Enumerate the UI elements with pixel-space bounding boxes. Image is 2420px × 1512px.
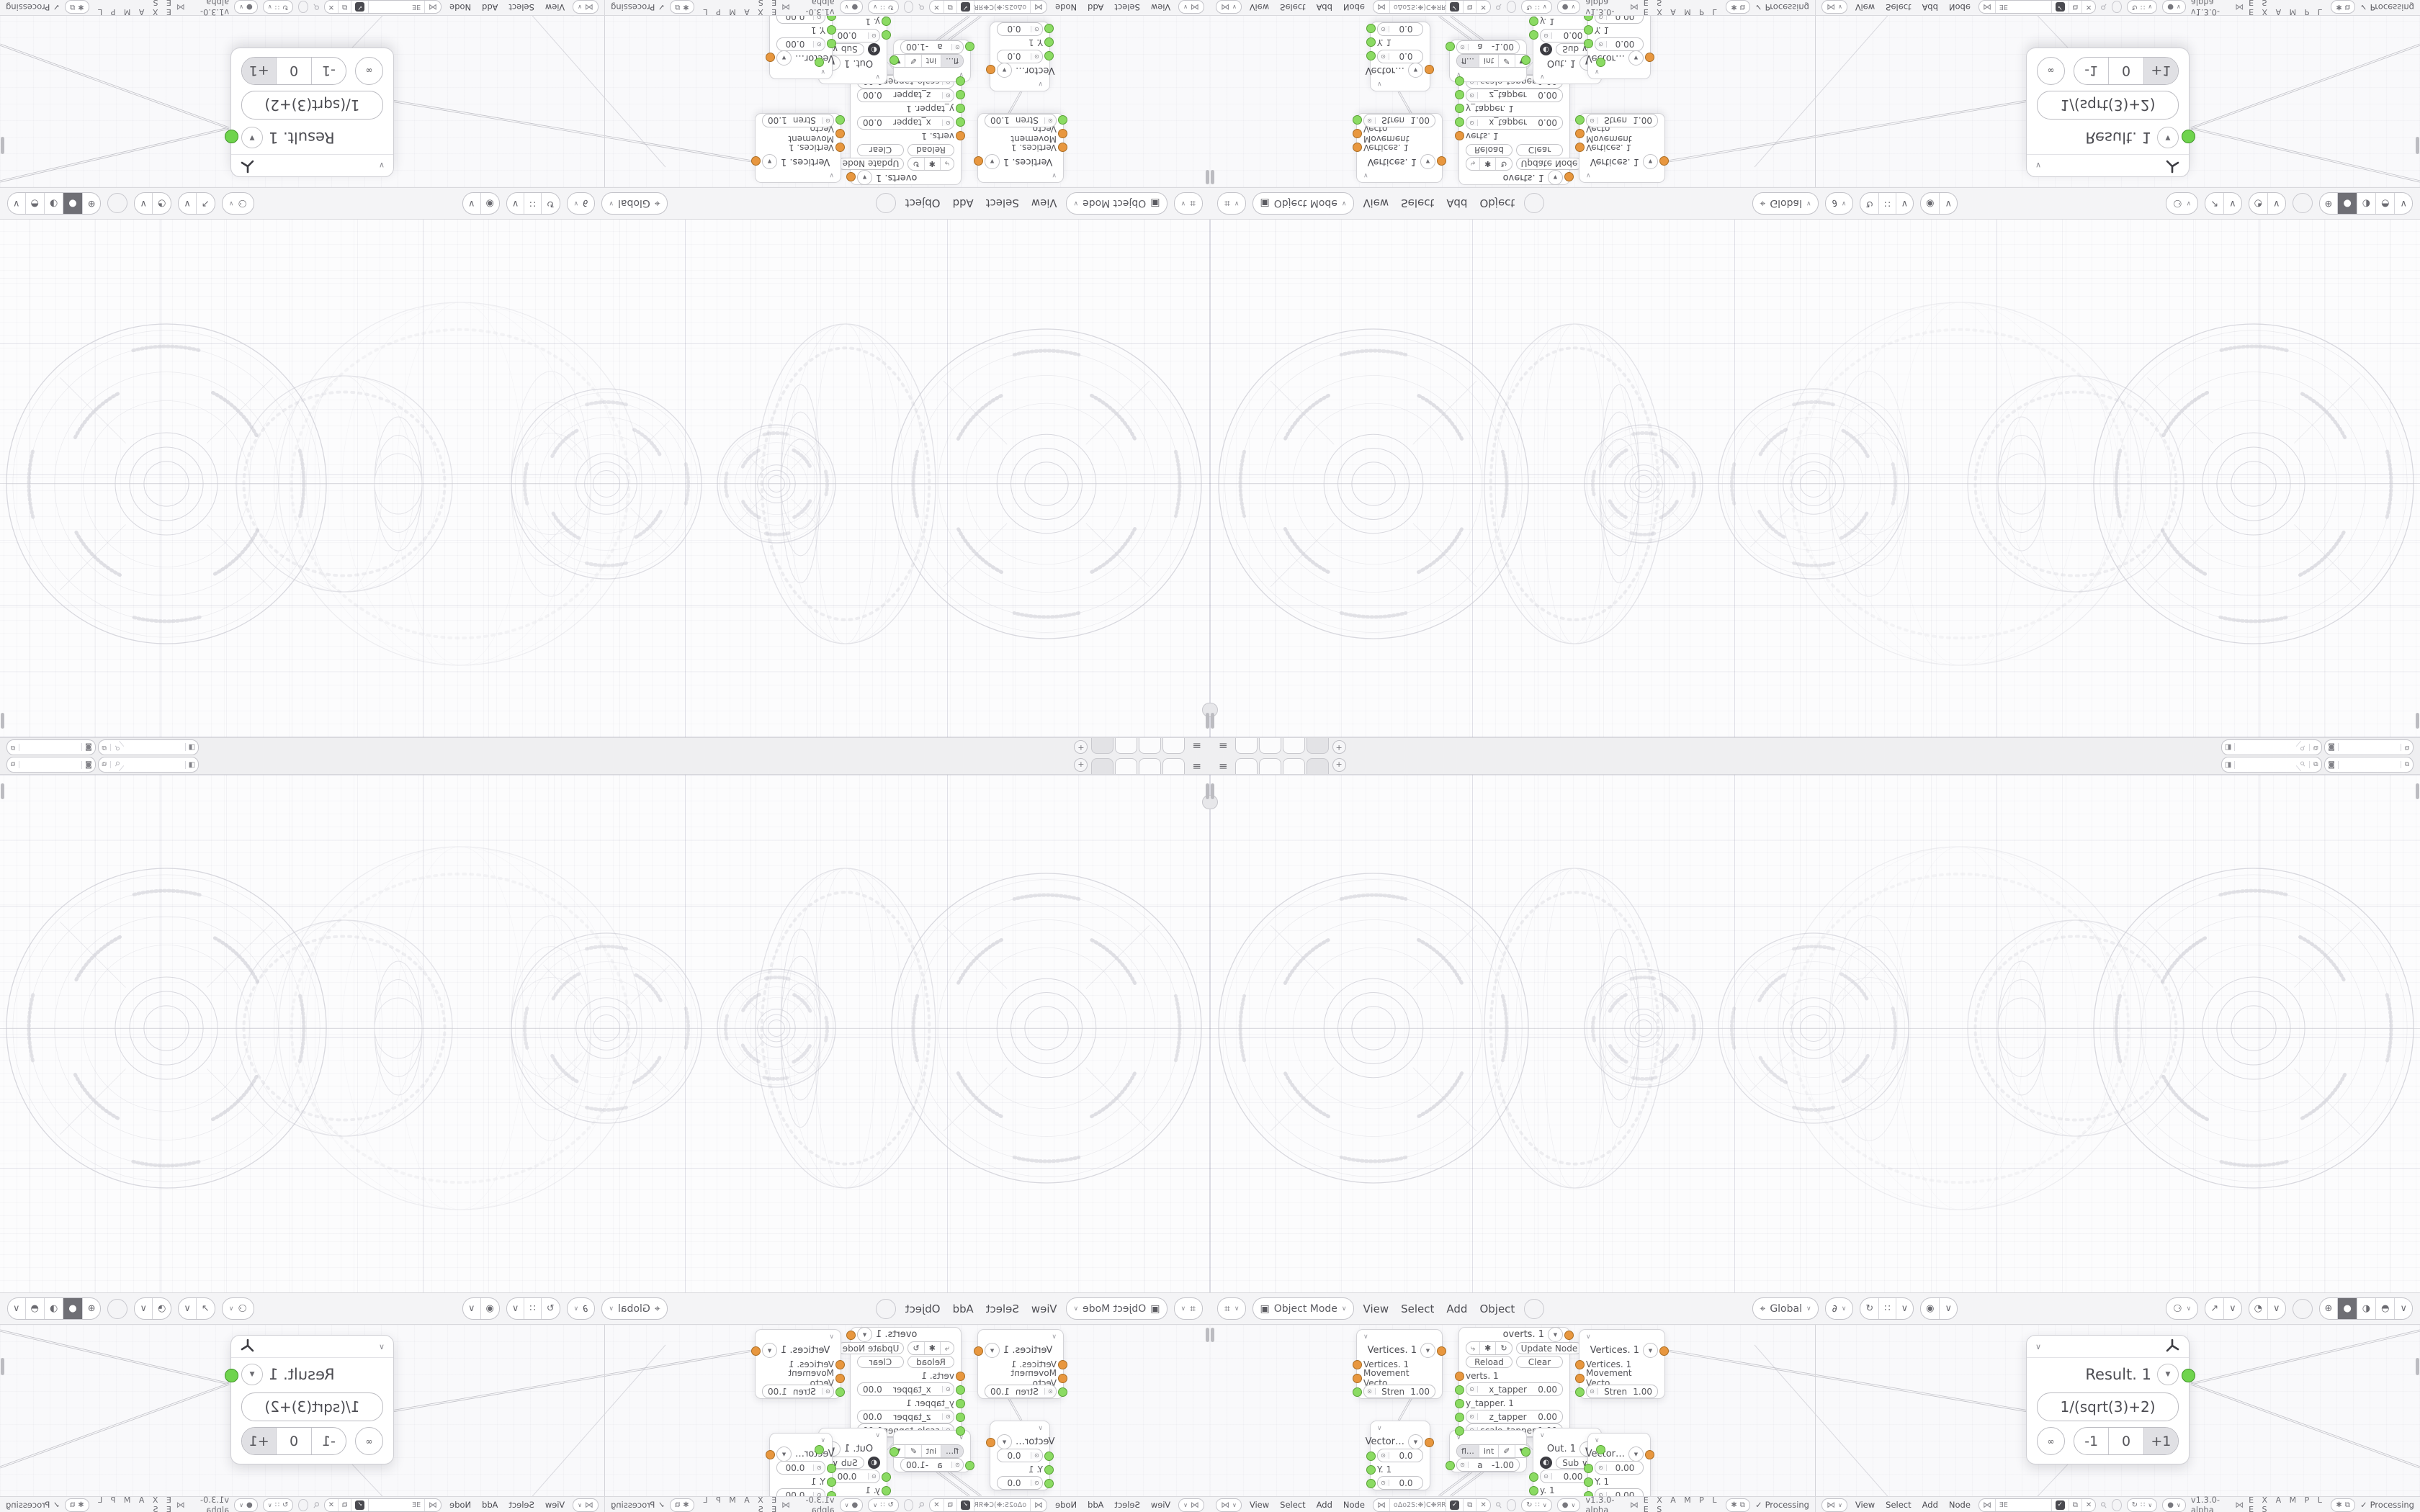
input-socket[interactable] bbox=[1575, 143, 1585, 152]
menu-select[interactable]: Select bbox=[1111, 2, 1142, 12]
edit-icon[interactable]: ✐ bbox=[905, 1445, 921, 1457]
input-socket[interactable] bbox=[827, 39, 836, 48]
value-field[interactable]: ⊙x_tapper0.00 bbox=[1466, 1382, 1563, 1396]
input-socket[interactable] bbox=[882, 1486, 891, 1495]
node-vector-1[interactable]: ∨Vector…▼⊙0.0Y. 1⊙0.0 bbox=[1370, 1421, 1430, 1490]
output-socket[interactable] bbox=[1521, 1447, 1531, 1457]
overlay-toggle[interactable]: ● ∨ bbox=[2162, 1498, 2186, 1512]
scrollbar-nub[interactable] bbox=[1, 1358, 4, 1375]
value-field[interactable]: ⊙0.0 bbox=[1377, 1476, 1423, 1490]
dropdown-button[interactable]: ▼ bbox=[1643, 154, 1658, 169]
fake-user-shield-icon[interactable]: ✓ bbox=[351, 1499, 368, 1511]
gizmo-toggle-group[interactable]: ↗ ∨ bbox=[2205, 192, 2241, 215]
output-socket[interactable] bbox=[751, 156, 761, 166]
tools-group[interactable]: ✱ ⧉ bbox=[670, 1, 694, 14]
browse-icon[interactable]: ⋈ bbox=[1979, 1499, 1996, 1511]
step-plus-button[interactable]: +1 bbox=[2144, 58, 2178, 84]
browse-icon[interactable]: ⋈ bbox=[1030, 1499, 1047, 1511]
viewport-3d[interactable] bbox=[1210, 775, 2420, 1292]
input-socket[interactable] bbox=[882, 17, 891, 26]
drag-toggle-icon[interactable]: ⊙ bbox=[1378, 26, 1389, 32]
node-vector-2[interactable]: ∨Vector…▼⊙0.00Y. 1⊙0.00 bbox=[1587, 1433, 1651, 1496]
collapse-chevron-icon[interactable]: ∨ bbox=[1377, 81, 1382, 88]
dropdown-button[interactable]: ▼ bbox=[776, 50, 792, 66]
node-overts-1[interactable]: overts. 1▼⤷✱↻Update NodeReloadClearverts… bbox=[1458, 74, 1570, 185]
node-overts-1[interactable]: overts. 1▼⤷✱↻Update NodeReloadClearverts… bbox=[850, 74, 962, 185]
drag-toggle-icon[interactable]: ⊙ bbox=[1364, 117, 1376, 124]
menu-add[interactable]: Add bbox=[1085, 2, 1106, 12]
menu-view[interactable]: View bbox=[1852, 1500, 1878, 1510]
debug-icon[interactable]: ✱ bbox=[924, 1342, 940, 1354]
node-vector-1[interactable]: ∨Vector…▼⊙0.0Y. 1⊙0.0 bbox=[990, 1421, 1050, 1490]
drag-toggle-icon[interactable]: ⊙ bbox=[868, 1473, 879, 1480]
menu-add[interactable]: Add bbox=[1919, 1500, 1941, 1510]
step-minus-button[interactable]: -1 bbox=[311, 1428, 346, 1454]
reload-button[interactable]: Reload bbox=[1466, 144, 1512, 156]
input-socket[interactable] bbox=[1455, 1426, 1464, 1436]
drag-toggle-icon[interactable]: ⊙ bbox=[1587, 1388, 1598, 1395]
snap-mode-group[interactable]: ↻ ∷ ∨ bbox=[506, 1297, 560, 1320]
refresh-icon[interactable]: ↻ bbox=[908, 1342, 923, 1354]
input-socket[interactable] bbox=[1366, 1452, 1376, 1461]
input-socket[interactable] bbox=[1353, 115, 1362, 125]
copy-icon[interactable]: ⧉ bbox=[2401, 744, 2413, 751]
input-socket[interactable] bbox=[1044, 37, 1054, 47]
fake-user-shield-icon[interactable]: ✓ bbox=[351, 1, 368, 14]
dropdown-button[interactable]: ▼ bbox=[1628, 50, 1644, 66]
input-socket[interactable] bbox=[1366, 1465, 1376, 1475]
menu-object[interactable]: Object bbox=[1476, 197, 1518, 210]
input-socket[interactable] bbox=[835, 1374, 845, 1383]
menu-add[interactable]: Add bbox=[950, 197, 977, 210]
snap-toggle[interactable]: ↻ ∷ ∨ bbox=[2127, 1498, 2158, 1512]
link-icon[interactable]: ∞ bbox=[2037, 57, 2065, 85]
edit-icon[interactable]: ✐ bbox=[905, 55, 921, 67]
scrollbar-nub[interactable] bbox=[1206, 170, 1209, 184]
menu-add[interactable]: Add bbox=[1314, 2, 1335, 12]
drag-toggle-icon[interactable]: ⊙ bbox=[1457, 1462, 1469, 1468]
value-field[interactable]: ⊙Stren1.00 bbox=[762, 1385, 834, 1398]
value-field[interactable]: ⊙0.00 bbox=[1595, 37, 1644, 51]
edit-icon[interactable]: ✐ bbox=[1499, 1445, 1515, 1457]
dropdown-button[interactable]: ▼ bbox=[1548, 1327, 1563, 1342]
shading-mode-group[interactable]: ⊕ ● ◑ ◓ ∨ bbox=[2319, 192, 2413, 215]
edit-icon[interactable]: ✐ bbox=[1499, 55, 1515, 67]
menu-select[interactable]: Select bbox=[1398, 197, 1437, 210]
node-overts-1[interactable]: overts. 1▼⤷✱↻Update NodeReloadClearverts… bbox=[1458, 1327, 1570, 1438]
snap-toggle[interactable]: ∂ ∨ bbox=[1825, 192, 1854, 215]
add-tab-button[interactable]: + bbox=[1074, 758, 1088, 772]
collapse-chevron-icon[interactable]: ∨ bbox=[820, 68, 825, 76]
output-socket[interactable] bbox=[1564, 1331, 1574, 1340]
shading-mode-group[interactable]: ⊕ ● ◑ ◓ ∨ bbox=[7, 1297, 101, 1320]
browse-icon[interactable]: ⋈ bbox=[1373, 1499, 1390, 1511]
result-node[interactable]: ∨ Result. 1 ▼ 1/(sqrt(3)+2) ∞ -1 bbox=[2026, 1335, 2190, 1464]
collapse-chevron-icon[interactable]: ∨ bbox=[2035, 161, 2041, 171]
workspace-tab[interactable] bbox=[1115, 738, 1137, 754]
input-socket[interactable] bbox=[1058, 129, 1067, 138]
input-socket[interactable] bbox=[1529, 1472, 1538, 1482]
input-socket[interactable] bbox=[1058, 1374, 1067, 1383]
drag-toggle-icon[interactable]: ⊙ bbox=[1587, 117, 1598, 124]
hamburger-menu-icon[interactable]: ≡ bbox=[1214, 738, 1232, 754]
workspace-tab-active[interactable] bbox=[1307, 758, 1329, 774]
node-editor[interactable]: ∨Vertices. 1▼Vertices. 1Movement Vecto…⊙… bbox=[0, 1325, 1210, 1496]
orientation-dropdown[interactable]: ⌖ Global ∨ bbox=[601, 192, 667, 215]
fake-user-shield-icon[interactable]: ✓ bbox=[1446, 1499, 1464, 1511]
browse-icon[interactable]: ⋈ bbox=[1373, 1, 1390, 14]
step-plus-button[interactable]: +1 bbox=[2144, 1428, 2178, 1454]
workspace-tab-active[interactable] bbox=[1307, 738, 1329, 754]
snap-mode-group[interactable]: ↻ ∷ ∨ bbox=[506, 192, 560, 215]
value-field[interactable]: ⊙0.0 bbox=[1377, 50, 1423, 63]
menu-select[interactable]: Select bbox=[1277, 2, 1308, 12]
float-option[interactable]: fl… bbox=[1457, 55, 1479, 67]
value-field[interactable]: ⊙Stren1.00 bbox=[762, 114, 834, 127]
input-socket[interactable] bbox=[1529, 30, 1538, 40]
node-vertices-1[interactable]: ∨Vertices. 1▼Vertices. 1Movement Vecto…⊙… bbox=[1356, 1329, 1443, 1399]
tool-circle-button[interactable] bbox=[2112, 1, 2121, 14]
value-field[interactable]: ⊙0.0 bbox=[1377, 22, 1423, 36]
scene-name-field[interactable] bbox=[123, 757, 185, 772]
browse-icon[interactable]: ⋈ bbox=[424, 1499, 441, 1511]
output-socket[interactable] bbox=[974, 1346, 983, 1356]
scene-selector[interactable]: ◨ ⚲ ⧉ bbox=[2221, 739, 2322, 755]
update-node-button[interactable]: Update Node bbox=[1516, 1342, 1583, 1354]
input-socket[interactable] bbox=[835, 143, 845, 152]
editor-type-button[interactable]: ⋈ ∨ bbox=[1216, 1, 1242, 14]
collapse-chevron-icon[interactable]: ∨ bbox=[1052, 1333, 1057, 1341]
input-socket[interactable] bbox=[1455, 131, 1464, 140]
workspace-tab[interactable] bbox=[1259, 738, 1281, 754]
viewport-3d[interactable] bbox=[0, 220, 1210, 737]
node-tree-selector[interactable]: ⋈ ƎE ✓ ⧉ ✕ bbox=[324, 1498, 442, 1512]
output-socket[interactable] bbox=[1659, 156, 1669, 166]
float-option[interactable]: fl… bbox=[941, 55, 963, 67]
workspace-tab-active[interactable] bbox=[1091, 738, 1113, 754]
refresh-icon[interactable]: ↻ bbox=[1496, 1342, 1511, 1354]
menu-select[interactable]: Select bbox=[1883, 1500, 1914, 1510]
browse-icon[interactable]: ⋈ bbox=[1979, 1, 1996, 14]
value-field[interactable]: ⊙a-1.00 bbox=[900, 1458, 964, 1472]
node-vector-1[interactable]: ∨Vector…▼⊙0.0Y. 1⊙0.0 bbox=[990, 22, 1050, 91]
copy-icon[interactable]: ⧉ bbox=[2069, 1499, 2082, 1511]
value-field[interactable]: ⊙0.00 bbox=[1595, 1461, 1644, 1475]
debug-icon[interactable]: ✱ bbox=[1480, 158, 1496, 170]
tool-circle-button[interactable] bbox=[1507, 1, 1516, 14]
fake-user-shield-icon[interactable]: ✓ bbox=[1446, 1, 1464, 14]
step-minus-button[interactable]: -1 bbox=[2074, 58, 2109, 84]
tree-name-field[interactable]: oΔo2S:❋)C❋ЯR o ЯR❋C(❋:2S:oΔo bbox=[974, 1, 1030, 14]
view-layer-selector[interactable]: ◙ ⧉ bbox=[2324, 757, 2414, 773]
input-socket[interactable] bbox=[956, 117, 965, 127]
input-socket[interactable] bbox=[1584, 39, 1593, 48]
node-vertices-2[interactable]: ∨Vertices. 1▼Vertices. 1Movement Vecto…⊙… bbox=[1579, 1329, 1665, 1399]
input-socket[interactable] bbox=[1366, 37, 1376, 47]
unlink-icon[interactable]: ✕ bbox=[930, 1, 943, 14]
value-field[interactable]: ⊙x_tapper0.00 bbox=[857, 1382, 954, 1396]
input-socket[interactable] bbox=[1044, 1479, 1054, 1488]
scrollbar-nub[interactable] bbox=[1, 713, 4, 729]
input-socket[interactable] bbox=[1446, 1461, 1455, 1470]
visibility-dropdown[interactable]: ⚆ ∨ bbox=[222, 192, 254, 215]
output-socket[interactable] bbox=[974, 156, 983, 166]
workspace-tab[interactable] bbox=[1283, 758, 1305, 774]
proportional-edit-group[interactable]: ◉ ∨ bbox=[462, 192, 500, 215]
add-tab-button[interactable]: + bbox=[1332, 758, 1346, 772]
collapse-chevron-icon[interactable]: ∨ bbox=[875, 1432, 880, 1439]
snap-toggle[interactable]: ↻ ∷ ∨ bbox=[1521, 1, 1552, 14]
workspace-tab[interactable] bbox=[1115, 758, 1137, 774]
input-socket[interactable] bbox=[1575, 129, 1585, 138]
node-vector-2[interactable]: ∨Vector…▼⊙0.00Y. 1⊙0.00 bbox=[1587, 16, 1651, 79]
editor-type-button[interactable]: ⋈ ∨ bbox=[1821, 1498, 1847, 1512]
snap-toggle[interactable]: ↻ ∷ ∨ bbox=[1521, 1498, 1552, 1512]
dropdown-button[interactable]: ▼ bbox=[1408, 1434, 1423, 1449]
editor-type-button[interactable]: ⋈ ∨ bbox=[1821, 1, 1847, 14]
input-socket[interactable] bbox=[1058, 115, 1067, 125]
input-socket[interactable] bbox=[1353, 129, 1362, 138]
editor-type-button[interactable]: ⋈ ∨ bbox=[1178, 1498, 1204, 1512]
overlay-toggle[interactable]: ● ∨ bbox=[1557, 1498, 1581, 1512]
menu-add[interactable]: Add bbox=[1443, 1302, 1470, 1315]
snap-toggle[interactable]: ∂ ∨ bbox=[567, 1297, 596, 1320]
collapse-chevron-icon[interactable]: ∨ bbox=[875, 73, 880, 81]
output-socket[interactable] bbox=[846, 172, 856, 181]
input-socket[interactable] bbox=[1584, 1491, 1593, 1496]
formula-field[interactable]: 1/(sqrt(3)+2) bbox=[241, 1392, 383, 1421]
input-socket[interactable] bbox=[1353, 1360, 1362, 1369]
reload-button[interactable]: Reload bbox=[907, 144, 954, 156]
output-socket[interactable] bbox=[1564, 172, 1574, 181]
workspace-tab[interactable] bbox=[1235, 738, 1258, 754]
tools-group[interactable]: ✱ ⧉ bbox=[1726, 1, 1750, 14]
node-vertices-1[interactable]: ∨Vertices. 1▼Vertices. 1Movement Vecto…⊙… bbox=[977, 113, 1064, 183]
drag-toggle-icon[interactable]: ⊙ bbox=[868, 32, 879, 39]
dropdown-button[interactable]: ▼ bbox=[985, 1343, 1000, 1358]
copy-icon[interactable]: ⧉ bbox=[2069, 1, 2082, 14]
menu-object[interactable]: Object bbox=[902, 197, 944, 210]
drag-toggle-icon[interactable]: ⊙ bbox=[1031, 1452, 1042, 1459]
int-option[interactable]: int bbox=[1479, 1445, 1499, 1457]
collapse-chevron-icon[interactable]: ∨ bbox=[1038, 1425, 1043, 1432]
snap-toggle[interactable]: ↻ ∷ ∨ bbox=[868, 1, 899, 14]
input-socket[interactable] bbox=[835, 1387, 845, 1397]
drag-toggle-icon[interactable]: ⊙ bbox=[1031, 1480, 1042, 1486]
drag-toggle-icon[interactable]: ⊙ bbox=[951, 44, 963, 50]
scrollbar-nub[interactable] bbox=[1, 783, 4, 799]
tool-circle-button[interactable] bbox=[298, 1, 308, 14]
value-field[interactable]: ⊙0.0 bbox=[997, 50, 1043, 63]
menu-view[interactable]: View bbox=[1852, 2, 1878, 12]
drag-toggle-icon[interactable]: ⊙ bbox=[1031, 26, 1042, 32]
menu-select[interactable]: Select bbox=[983, 197, 1022, 210]
input-socket[interactable] bbox=[1366, 1479, 1376, 1488]
value-field[interactable]: ⊙Stren1.00 bbox=[985, 114, 1057, 127]
update-node-button[interactable]: Update Node bbox=[838, 1342, 905, 1354]
drag-toggle-icon[interactable]: ⊙ bbox=[1044, 117, 1056, 124]
menu-view[interactable]: View bbox=[1361, 197, 1392, 210]
pin-icon[interactable]: ⚲ bbox=[310, 1499, 321, 1510]
node-tree-selector[interactable]: ⋈ oΔo2S:❋)C❋ЯR o ЯR❋C(❋:2S:oΔo ✓ ⧉ ✕ bbox=[929, 1498, 1047, 1512]
input-socket[interactable] bbox=[1584, 1477, 1593, 1487]
input-socket[interactable] bbox=[956, 76, 965, 86]
unlink-icon[interactable]: ✕ bbox=[930, 1499, 943, 1511]
input-socket[interactable] bbox=[1044, 1452, 1054, 1461]
output-socket[interactable] bbox=[1659, 1346, 1669, 1356]
drag-toggle-icon[interactable]: ⊙ bbox=[942, 1413, 954, 1420]
collapse-chevron-icon[interactable]: ∨ bbox=[1038, 81, 1043, 88]
step-zero-button[interactable]: 0 bbox=[2109, 1428, 2143, 1454]
input-socket[interactable] bbox=[882, 30, 891, 40]
dropdown-button[interactable]: ▼ bbox=[762, 154, 777, 169]
proportional-edit-group[interactable]: ◉ ∨ bbox=[1920, 192, 1958, 215]
value-field[interactable]: ⊙Stren1.00 bbox=[985, 1385, 1057, 1398]
link-icon[interactable]: ∞ bbox=[2037, 1427, 2065, 1455]
menu-view[interactable]: View bbox=[1028, 197, 1060, 210]
overlay-toggle-group[interactable]: ◔ ∨ bbox=[134, 1297, 171, 1320]
output-socket[interactable] bbox=[815, 58, 824, 67]
menu-add[interactable]: Add bbox=[1443, 197, 1470, 210]
copy-icon[interactable]: ⧉ bbox=[2309, 744, 2321, 751]
drag-toggle-icon[interactable]: ⊙ bbox=[1466, 92, 1478, 99]
input-socket[interactable] bbox=[1575, 1360, 1585, 1369]
collapse-chevron-icon[interactable]: ∨ bbox=[2035, 1342, 2041, 1351]
unlink-icon[interactable]: ✕ bbox=[1476, 1499, 1489, 1511]
browse-icon[interactable]: ⋈ bbox=[424, 1, 441, 14]
int-option[interactable]: int bbox=[921, 55, 941, 67]
dropdown-button[interactable]: ▼ bbox=[997, 1434, 1012, 1449]
menu-add[interactable]: Add bbox=[1085, 1500, 1106, 1510]
menu-view[interactable]: View bbox=[1361, 1302, 1392, 1315]
menu-view[interactable]: View bbox=[1247, 2, 1272, 12]
workspace-tab-active[interactable] bbox=[1091, 758, 1113, 774]
drag-toggle-icon[interactable]: ⊙ bbox=[822, 117, 833, 124]
collapse-chevron-icon[interactable]: ∨ bbox=[1595, 68, 1600, 76]
snap-toggle[interactable]: ↻ ∷ ∨ bbox=[263, 1498, 294, 1512]
tree-name-field[interactable]: oΔo2S:❋)C❋ЯR o ЯR❋C(❋:2S:oΔo bbox=[1390, 1, 1446, 14]
value-field[interactable]: ⊙a-1.00 bbox=[1456, 40, 1520, 54]
input-socket[interactable] bbox=[1455, 76, 1464, 86]
visibility-dropdown[interactable]: ⚆ ∨ bbox=[2166, 1297, 2198, 1320]
output-socket[interactable] bbox=[2182, 130, 2195, 143]
drag-toggle-icon[interactable]: ⊙ bbox=[1595, 41, 1607, 48]
debug-icon[interactable]: ✱ bbox=[1480, 1342, 1496, 1354]
layer-name-field[interactable] bbox=[2339, 757, 2401, 772]
collapse-chevron-icon[interactable]: ∨ bbox=[379, 161, 385, 171]
area-divider[interactable] bbox=[604, 1325, 605, 1496]
scrollbar-nub[interactable] bbox=[1211, 783, 1214, 799]
redirect-icon[interactable]: ⤷ bbox=[1466, 158, 1480, 170]
input-socket[interactable] bbox=[1584, 25, 1593, 35]
input-socket[interactable] bbox=[956, 1413, 965, 1422]
value-field[interactable]: ⊙0.00 bbox=[776, 1461, 825, 1475]
menu-select[interactable]: Select bbox=[506, 1500, 537, 1510]
link-icon[interactable]: ∞ bbox=[355, 57, 383, 85]
step-zero-button[interactable]: 0 bbox=[2109, 58, 2143, 84]
menu-select[interactable]: Select bbox=[506, 2, 537, 12]
output-socket[interactable] bbox=[986, 65, 995, 74]
view-layer-selector[interactable]: ◙ ⧉ bbox=[2324, 739, 2414, 755]
tool-circle-button[interactable] bbox=[1507, 1499, 1516, 1511]
mode-dropdown[interactable]: ▣ Object Mode ∨ bbox=[1252, 1297, 1353, 1320]
int-option[interactable]: int bbox=[1479, 55, 1499, 67]
workspace-tab[interactable] bbox=[1283, 738, 1305, 754]
drag-toggle-icon[interactable]: ⊙ bbox=[1378, 1452, 1389, 1459]
value-field[interactable]: ⊙z_tapper0.00 bbox=[857, 1410, 954, 1423]
editor-type-button[interactable]: ⋈ ∨ bbox=[1178, 1, 1204, 14]
value-field[interactable]: ⊙a-1.00 bbox=[900, 40, 964, 54]
debug-icon[interactable]: ✱ bbox=[924, 158, 940, 170]
collapse-chevron-icon[interactable]: ∨ bbox=[829, 172, 834, 179]
input-socket[interactable] bbox=[1529, 17, 1538, 26]
input-socket[interactable] bbox=[1455, 117, 1464, 127]
orientation-dropdown[interactable]: ⌖ Global ∨ bbox=[1752, 1297, 1818, 1320]
menu-add[interactable]: Add bbox=[1919, 2, 1941, 12]
step-zero-button[interactable]: 0 bbox=[276, 58, 310, 84]
collapse-chevron-icon[interactable]: ∨ bbox=[1052, 172, 1057, 179]
menu-view[interactable]: View bbox=[1148, 1500, 1173, 1510]
int-option[interactable]: int bbox=[921, 1445, 941, 1457]
pin-icon[interactable]: ⚲ bbox=[109, 741, 123, 755]
input-socket[interactable] bbox=[1584, 1464, 1593, 1473]
input-socket[interactable] bbox=[835, 115, 845, 125]
value-field[interactable]: ⊙0.00 bbox=[776, 37, 825, 51]
xray-toggle[interactable] bbox=[2293, 194, 2313, 214]
value-field[interactable]: ⊙z_tapper0.00 bbox=[857, 89, 954, 102]
collapse-chevron-icon[interactable]: ∨ bbox=[1377, 1425, 1382, 1432]
view-layer-selector[interactable]: ◙ ⧉ bbox=[6, 739, 96, 755]
input-socket[interactable] bbox=[1044, 24, 1054, 33]
tool-circle-button[interactable] bbox=[1524, 194, 1544, 214]
formula-field[interactable]: 1/(sqrt(3)+2) bbox=[2037, 91, 2179, 120]
proportional-edit-group[interactable]: ◉ ∨ bbox=[462, 1297, 500, 1320]
node-editor[interactable]: ∨Vertices. 1▼Vertices. 1Movement Vecto…⊙… bbox=[1210, 1325, 2420, 1496]
clear-button[interactable]: Clear bbox=[1516, 144, 1563, 156]
menu-view[interactable]: View bbox=[1247, 1500, 1272, 1510]
workspace-tab[interactable] bbox=[1139, 758, 1161, 774]
snap-toggle[interactable]: ↻ ∷ ∨ bbox=[2127, 1, 2158, 14]
output-socket[interactable] bbox=[1437, 1346, 1446, 1356]
collapse-chevron-icon[interactable]: ∨ bbox=[1363, 1333, 1368, 1341]
copy-icon[interactable]: ⧉ bbox=[944, 1499, 956, 1511]
node-tree-selector[interactable]: ⋈ ƎE ✓ ⧉ ✕ bbox=[1978, 1498, 2096, 1512]
scrollbar-nub[interactable] bbox=[1211, 1328, 1214, 1342]
reload-button[interactable]: Reload bbox=[1466, 1356, 1512, 1368]
clear-button[interactable]: Clear bbox=[857, 1356, 904, 1368]
workspace-tab[interactable] bbox=[1162, 758, 1185, 774]
fake-user-shield-icon[interactable]: ✓ bbox=[956, 1499, 974, 1511]
unlink-icon[interactable]: ✕ bbox=[2082, 1499, 2095, 1511]
dropdown-button[interactable]: ▼ bbox=[1420, 154, 1435, 169]
step-plus-button[interactable]: +1 bbox=[242, 1428, 276, 1454]
input-socket[interactable] bbox=[956, 90, 965, 99]
drag-toggle-icon[interactable]: ⊙ bbox=[822, 1388, 833, 1395]
drag-toggle-icon[interactable]: ⊙ bbox=[1378, 1480, 1389, 1486]
node-editor[interactable]: ∨Vertices. 1▼Vertices. 1Movement Vecto…⊙… bbox=[0, 16, 1210, 187]
collapse-chevron-icon[interactable]: ∨ bbox=[1540, 73, 1545, 81]
unlink-icon[interactable]: ✕ bbox=[325, 1, 338, 14]
tree-name-field[interactable]: oΔo2S:❋)C❋ЯR o ЯR❋C(❋:2S:oΔo bbox=[974, 1499, 1030, 1511]
drag-toggle-icon[interactable]: ⊙ bbox=[942, 92, 954, 99]
output-socket[interactable] bbox=[1437, 156, 1446, 166]
value-field[interactable]: ⊙z_tapper0.00 bbox=[1466, 1410, 1563, 1423]
input-socket[interactable] bbox=[1455, 1385, 1464, 1395]
input-socket[interactable] bbox=[882, 1472, 891, 1482]
copy-icon[interactable]: ⧉ bbox=[1464, 1, 1476, 14]
output-socket[interactable] bbox=[1596, 1445, 1605, 1454]
overlay-toggle-group[interactable]: ◔ ∨ bbox=[2249, 192, 2286, 215]
